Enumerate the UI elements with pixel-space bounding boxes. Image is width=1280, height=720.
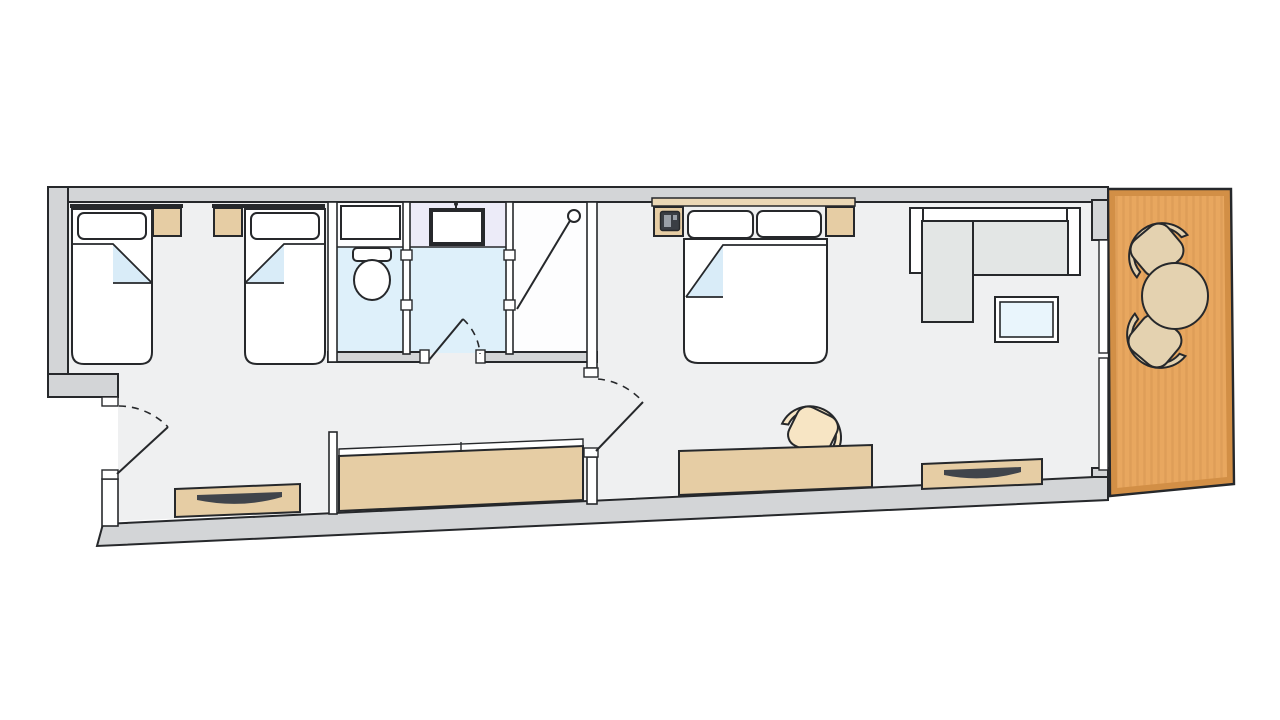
wall-bathroom-bottom-right [481, 352, 597, 362]
partition-wc-jamb-top [401, 250, 412, 260]
floor-plan-canvas [0, 0, 1280, 720]
low-dresser [922, 459, 1042, 489]
toilet-bowl [354, 260, 390, 300]
partition-shower-jamb-bottom [504, 300, 515, 310]
single-bed-2-pillow [251, 213, 319, 239]
bathroom-wall-left [328, 202, 337, 362]
partition-core-shower [506, 202, 513, 354]
wall-left [48, 187, 68, 376]
patio-table [1142, 263, 1208, 329]
double-bed-pillow-right [757, 211, 821, 237]
coffee-table [995, 297, 1058, 342]
wall-right-pillar [1092, 200, 1108, 240]
wc-shelf [341, 206, 400, 239]
washbasin-rim [431, 210, 483, 244]
single-bed-1 [72, 209, 152, 364]
glass-pane-lower [1099, 358, 1108, 470]
nightstand-2 [214, 208, 242, 236]
double-bed-mattress [684, 239, 827, 363]
coffee-table-top [1000, 302, 1053, 337]
bathroom-core-floor [410, 247, 506, 353]
shower-head [568, 210, 580, 222]
partition-wc-jamb-bottom [401, 300, 412, 310]
bathroom-door-jamb-right [476, 350, 485, 363]
phone [661, 212, 680, 231]
bedroom-door-jamb-bottom [584, 448, 598, 457]
entry-wall-lower [102, 479, 118, 526]
balcony [1108, 189, 1234, 496]
double-bed-pillow-left [688, 211, 753, 238]
phone-keys [673, 215, 677, 220]
entry-door-jamb-top [102, 397, 118, 406]
double-bed-headboard [652, 198, 855, 206]
entry-door-jamb-bottom [102, 470, 118, 479]
bedroom-door-jamb-top [584, 368, 598, 377]
entry-dresser [175, 484, 300, 517]
phone-handset [664, 215, 671, 227]
partition-shower-jamb-top [504, 250, 515, 260]
faucet-knob [454, 202, 458, 206]
wardrobe-partition [329, 432, 337, 514]
sofa-chaise [922, 221, 973, 322]
washbasin [431, 202, 483, 244]
glass-pane-upper [1099, 240, 1108, 353]
single-bed-2 [245, 209, 325, 364]
shower-floor [513, 202, 587, 353]
wardrobe [339, 439, 583, 511]
wall-top [48, 187, 1108, 202]
sofa-back [910, 208, 1080, 222]
desk [679, 445, 872, 495]
wardrobe-body [339, 446, 583, 511]
wall-left-step [48, 374, 118, 397]
bathroom-door-jamb-left [420, 350, 429, 363]
toilet [353, 248, 391, 300]
single-bed-1-pillow [78, 213, 146, 239]
partition-wc-core [403, 202, 410, 354]
bathroom-wall-right [587, 202, 597, 368]
living-area [910, 208, 1080, 342]
sofa-seat [973, 221, 1068, 275]
nightstand-right [826, 207, 854, 236]
nightstand-1 [153, 208, 181, 236]
balcony-glass-door [1099, 240, 1108, 470]
bedroom-wall-lower [587, 457, 597, 504]
